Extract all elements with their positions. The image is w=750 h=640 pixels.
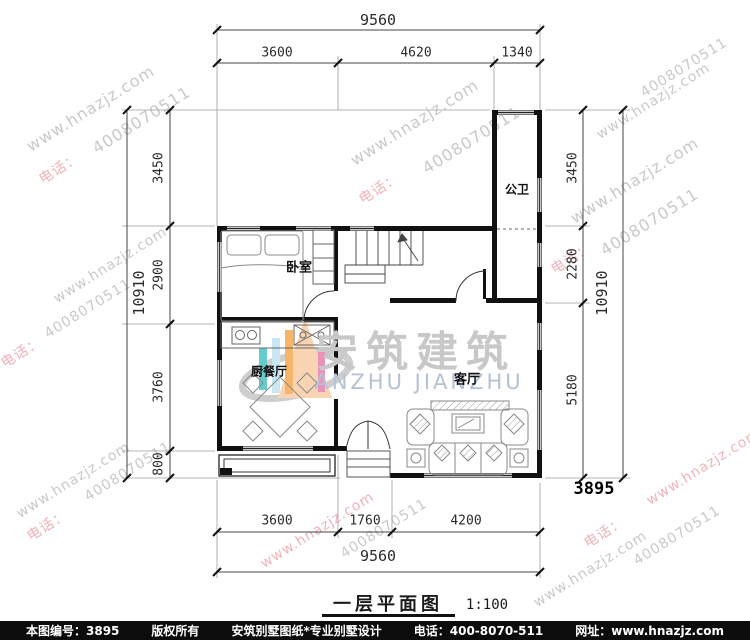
dim-top-total: 9560: [360, 11, 396, 29]
dimension-ticks: [123, 26, 627, 576]
drawing-scale: 1:100: [466, 597, 508, 613]
room-label-kitchen-dining: 厨餐厅: [251, 363, 287, 380]
dim-top-seg3: 1340: [501, 46, 532, 61]
wardrobe: [313, 230, 334, 284]
plan-number: 3895: [574, 479, 615, 499]
extension-lines: [122, 24, 630, 578]
entry-steps: [347, 451, 390, 477]
staircase: [345, 231, 423, 283]
dim-left-seg2: 2900: [152, 259, 167, 290]
footer-studio: 安筑别墅图纸*专业别墅设计: [231, 622, 381, 639]
dim-bottom-seg3: 4200: [450, 514, 481, 529]
footer-copyright: 版权所有: [151, 622, 199, 639]
dim-left-seg1: 3450: [152, 152, 167, 183]
floorplan-sheet: www.hnazjz.com 电话： 4008070511 www.hnazjz…: [0, 0, 750, 640]
sofa-set: [407, 401, 528, 475]
dim-right-total: 10910: [593, 270, 611, 315]
dim-right-seg2: 2280: [566, 248, 581, 279]
dim-bottom-total: 9560: [360, 547, 396, 565]
drawing-title: 一层平面图: [333, 590, 443, 616]
room-label-living: 客厅: [454, 369, 480, 388]
footer-sheet-no: 本图编号：3895: [26, 622, 119, 639]
dim-right-seg1: 3450: [566, 152, 581, 183]
dim-right-seg3: 5180: [566, 374, 581, 405]
dim-left-seg3: 3760: [152, 371, 167, 402]
footer-bar: 本图编号：3895 版权所有 安筑别墅图纸*专业别墅设计 电话：400-8070…: [0, 621, 750, 640]
dim-bottom-seg1: 3600: [261, 514, 292, 529]
dim-bottom-seg2: 1760: [349, 514, 380, 529]
room-label-bathroom: 公卫: [505, 181, 529, 198]
porch: [219, 455, 335, 476]
room-label-bedroom: 卧室: [286, 257, 312, 276]
footer-site: 网址：www.hnazjz.com: [575, 622, 724, 639]
logo-en: ANZHU JIANZHU: [314, 370, 523, 394]
dim-left-total: 10910: [130, 270, 148, 315]
dim-top-seg1: 3600: [261, 46, 292, 61]
footer-phone: 电话：400-8070-511: [414, 622, 543, 639]
dimension-lines: [127, 30, 623, 572]
bed: [221, 231, 303, 321]
dim-left-seg4: 800: [152, 452, 167, 475]
dim-top-seg2: 4620: [400, 46, 431, 61]
